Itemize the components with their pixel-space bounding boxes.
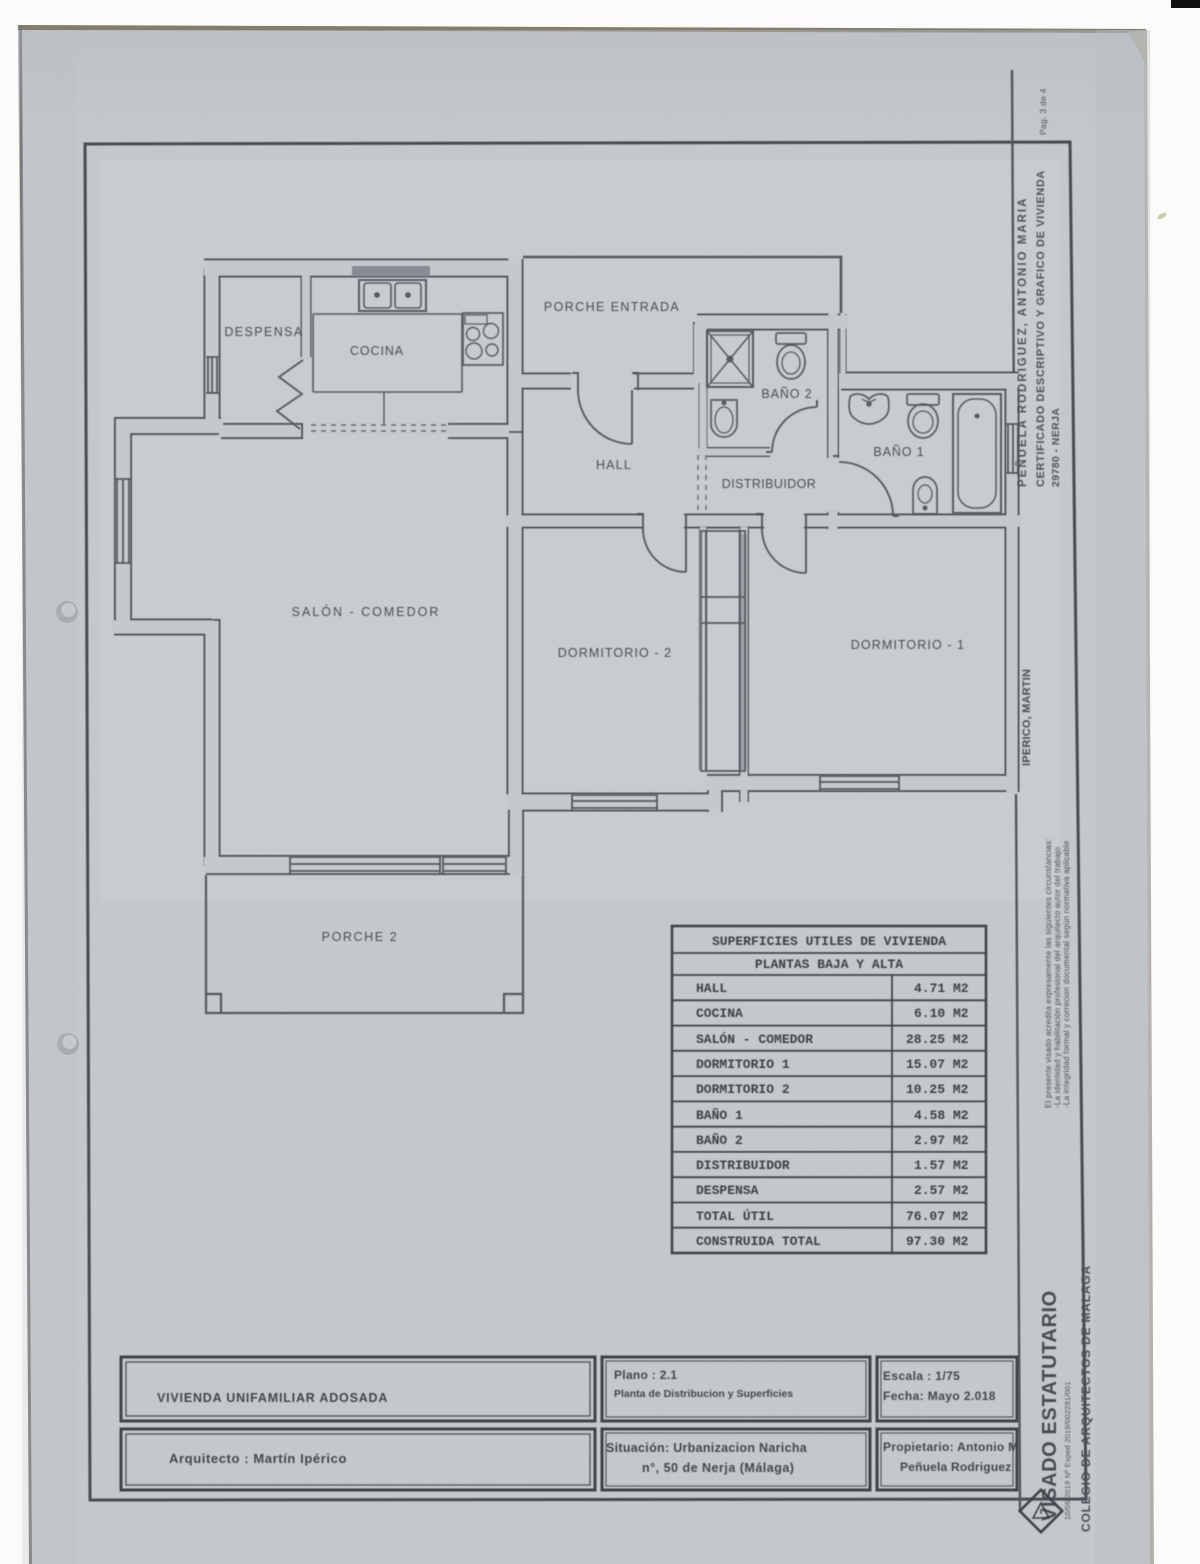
svg-text:Plano : 2.1: Plano : 2.1 xyxy=(614,1368,677,1382)
svg-text:Propietario: Antonio M: Propietario: Antonio M xyxy=(883,1440,1018,1454)
svg-text:PEÑUELA RODRIGUEZ, ANTONIO MAR: PEÑUELA RODRIGUEZ, ANTONIO MARIA xyxy=(1016,197,1029,487)
svg-text:BAÑO 1: BAÑO 1 xyxy=(696,1108,743,1123)
svg-text:Peñuela Rodriguez: Peñuela Rodriguez xyxy=(900,1460,1011,1474)
svg-text:DORMITORIO 2: DORMITORIO 2 xyxy=(696,1082,790,1097)
svg-text:VIVIENDA UNIFAMILIAR ADOSADA: VIVIENDA UNIFAMILIAR ADOSADA xyxy=(157,1391,388,1405)
svg-text:DESPENSA: DESPENSA xyxy=(696,1183,759,1198)
svg-text:76.07 M2: 76.07 M2 xyxy=(906,1209,969,1224)
svg-text:BAÑO 1: BAÑO 1 xyxy=(873,445,924,459)
svg-text:Arquitecto : Martín Ipéri: Arquitecto : Martín Ipérico xyxy=(169,1451,347,1466)
svg-text:IPERICO, MARTIN: IPERICO, MARTIN xyxy=(1021,669,1033,766)
svg-text:1.57 M2: 1.57 M2 xyxy=(914,1158,969,1173)
svg-text:BAÑO 2: BAÑO 2 xyxy=(761,387,812,401)
svg-text:10/06/2019 Nº Exped 2019/00: 10/06/2019 Nº Exped 2019/002281/001 xyxy=(1063,1381,1072,1520)
svg-text:Escala : 1/75: Escala : 1/75 xyxy=(883,1369,960,1383)
svg-text:SALÓN - COMEDOR: SALÓN - COMEDOR xyxy=(696,1032,813,1047)
svg-text:HALL: HALL xyxy=(696,981,727,996)
svg-text:Planta de Distribucion y S: Planta de Distribucion y Superficies xyxy=(614,1388,793,1400)
svg-text:4.58 M2: 4.58 M2 xyxy=(914,1108,969,1123)
svg-text:HALL: HALL xyxy=(596,458,632,472)
svg-text:-La integridad formal y correc: -La integridad formal y correcion docume… xyxy=(1062,840,1071,1108)
svg-text:CERTIFICADO DESCRIPTIVO Y GRAF: CERTIFICADO DESCRIPTIVO Y GRAFICO DE VIV… xyxy=(1035,170,1047,487)
svg-text:CONSTRUIDA TOTAL: CONSTRUIDA TOTAL xyxy=(696,1234,821,1249)
svg-text:PORCHE 2: PORCHE 2 xyxy=(322,930,399,944)
svg-text:DISTRIBUIDOR: DISTRIBUIDOR xyxy=(696,1158,790,1173)
svg-text:4.71 M2: 4.71 M2 xyxy=(914,981,969,996)
svg-text:VISADO ESTATUTARIO: VISADO ESTATUTARIO xyxy=(1039,1290,1061,1521)
svg-text:SALÓN - COMEDOR: SALÓN - COMEDOR xyxy=(292,604,441,619)
svg-text:Pag. 3 de 4: Pag. 3 de 4 xyxy=(1038,88,1048,135)
svg-text:15.07 M2: 15.07 M2 xyxy=(906,1057,969,1072)
svg-text:PLANTAS BAJA Y ALTA: PLANTAS BAJA Y ALTA xyxy=(755,957,903,972)
svg-text:n°, 50 de Nerja (Málaga): n°, 50 de Nerja (Málaga) xyxy=(642,1461,794,1475)
svg-text:Situación: Urbanizacion Nari: Situación: Urbanizacion Naricha xyxy=(606,1441,808,1455)
svg-text:TOTAL ÚTIL: TOTAL ÚTIL xyxy=(696,1209,774,1224)
svg-text:COCINA: COCINA xyxy=(696,1006,743,1021)
svg-text:El presente visado acredita ex: El presente visado acredita expresamente… xyxy=(1044,839,1053,1108)
svg-text:COCINA: COCINA xyxy=(350,344,404,358)
svg-text:DORMITORIO - 1: DORMITORIO - 1 xyxy=(851,638,965,652)
svg-text:97.30 M2: 97.30 M2 xyxy=(906,1234,969,1249)
svg-text:COLEGIO DE ARQUITECTOS DE MALA: COLEGIO DE ARQUITECTOS DE MALAGA xyxy=(1079,1265,1093,1532)
svg-text:Fecha: Mayo 2.018: Fecha: Mayo 2.018 xyxy=(883,1389,996,1403)
svg-text:DESPENSA: DESPENSA xyxy=(224,325,303,339)
svg-text:DISTRIBUIDOR: DISTRIBUIDOR xyxy=(722,477,816,491)
svg-text:10.25 M2: 10.25 M2 xyxy=(906,1082,969,1097)
svg-text:BAÑO 2: BAÑO 2 xyxy=(696,1133,743,1148)
svg-text:DORMITORIO - 2: DORMITORIO - 2 xyxy=(558,646,672,660)
svg-text:SUPERFICIES UTILES DE VIVIENDA: SUPERFICIES UTILES DE VIVIENDA xyxy=(712,934,946,949)
svg-text:DORMITORIO 1: DORMITORIO 1 xyxy=(696,1057,790,1072)
svg-text:29780 - NERJA: 29780 - NERJA xyxy=(1050,408,1062,487)
svg-text:6.10 M2: 6.10 M2 xyxy=(914,1006,969,1021)
svg-text:2.57 M2: 2.57 M2 xyxy=(914,1183,969,1198)
svg-text:PORCHE ENTRADA: PORCHE ENTRADA xyxy=(544,300,680,314)
svg-text:2.97 M2: 2.97 M2 xyxy=(914,1133,969,1148)
svg-text:28.25 M2: 28.25 M2 xyxy=(906,1032,969,1047)
svg-text:-La identidad y habilitación p: -La identidad y habilitación profesional… xyxy=(1053,847,1062,1108)
